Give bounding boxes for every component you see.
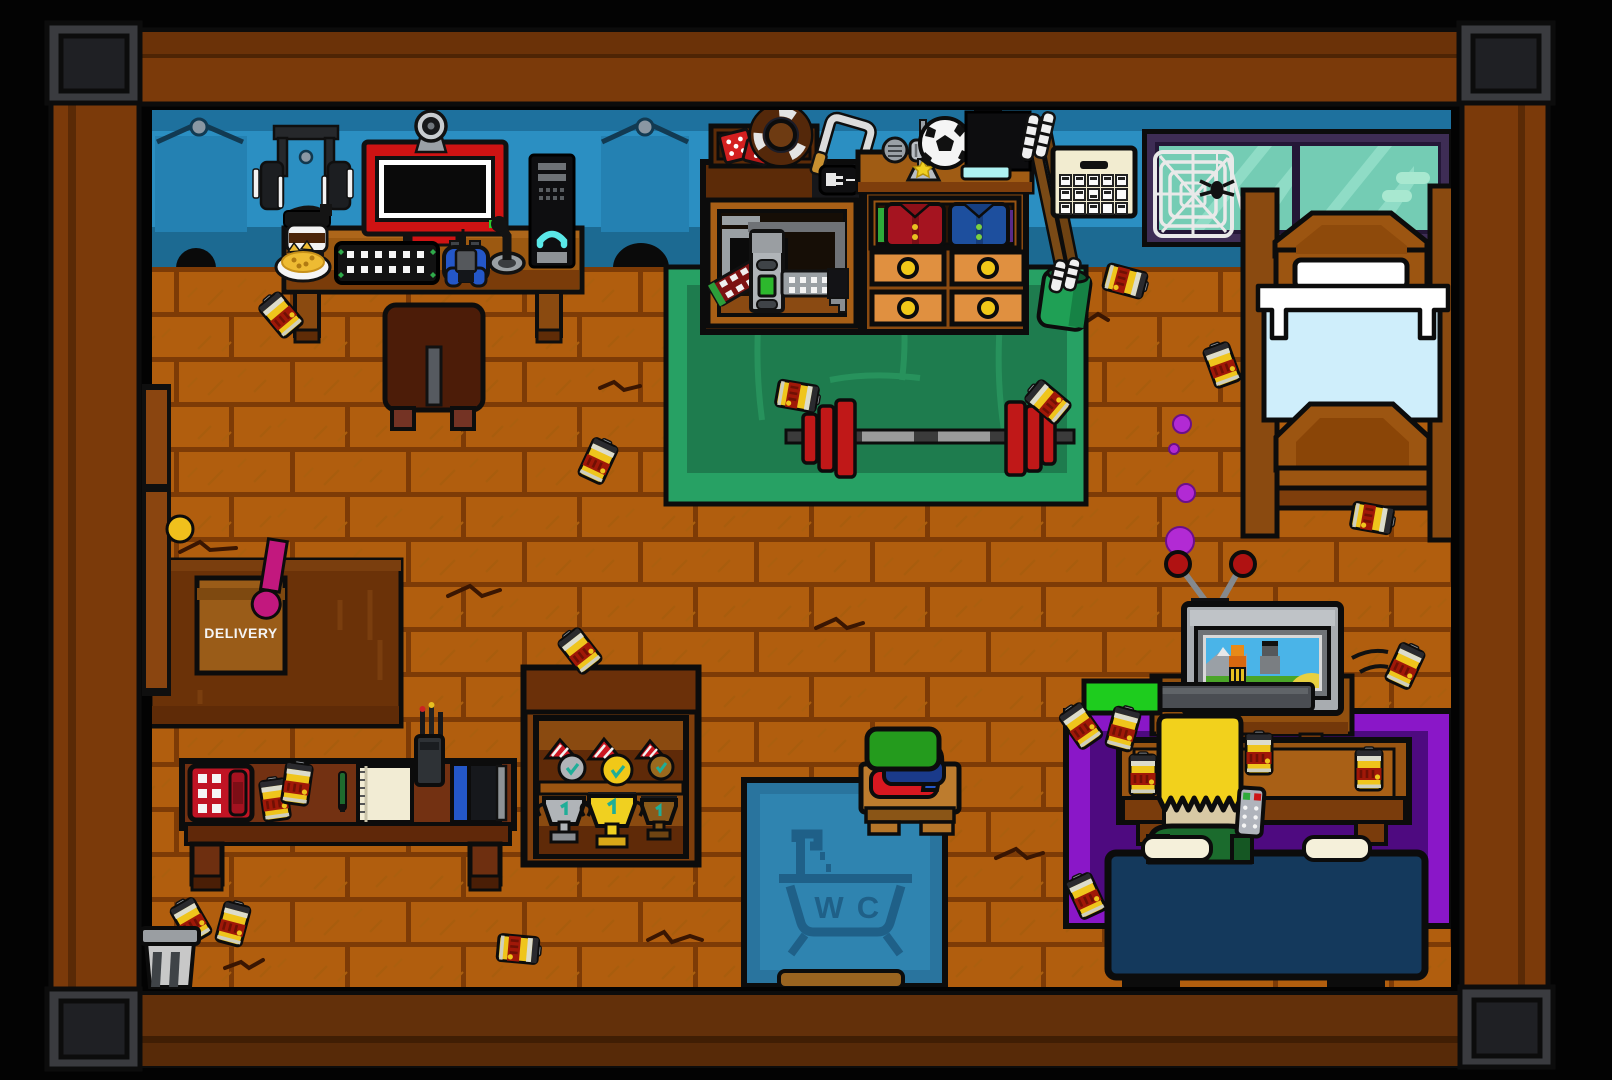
svg-text:DELIVERY: DELIVERY [204, 625, 278, 641]
svg-text:W: W [814, 890, 844, 925]
svg-text:C: C [857, 890, 879, 925]
